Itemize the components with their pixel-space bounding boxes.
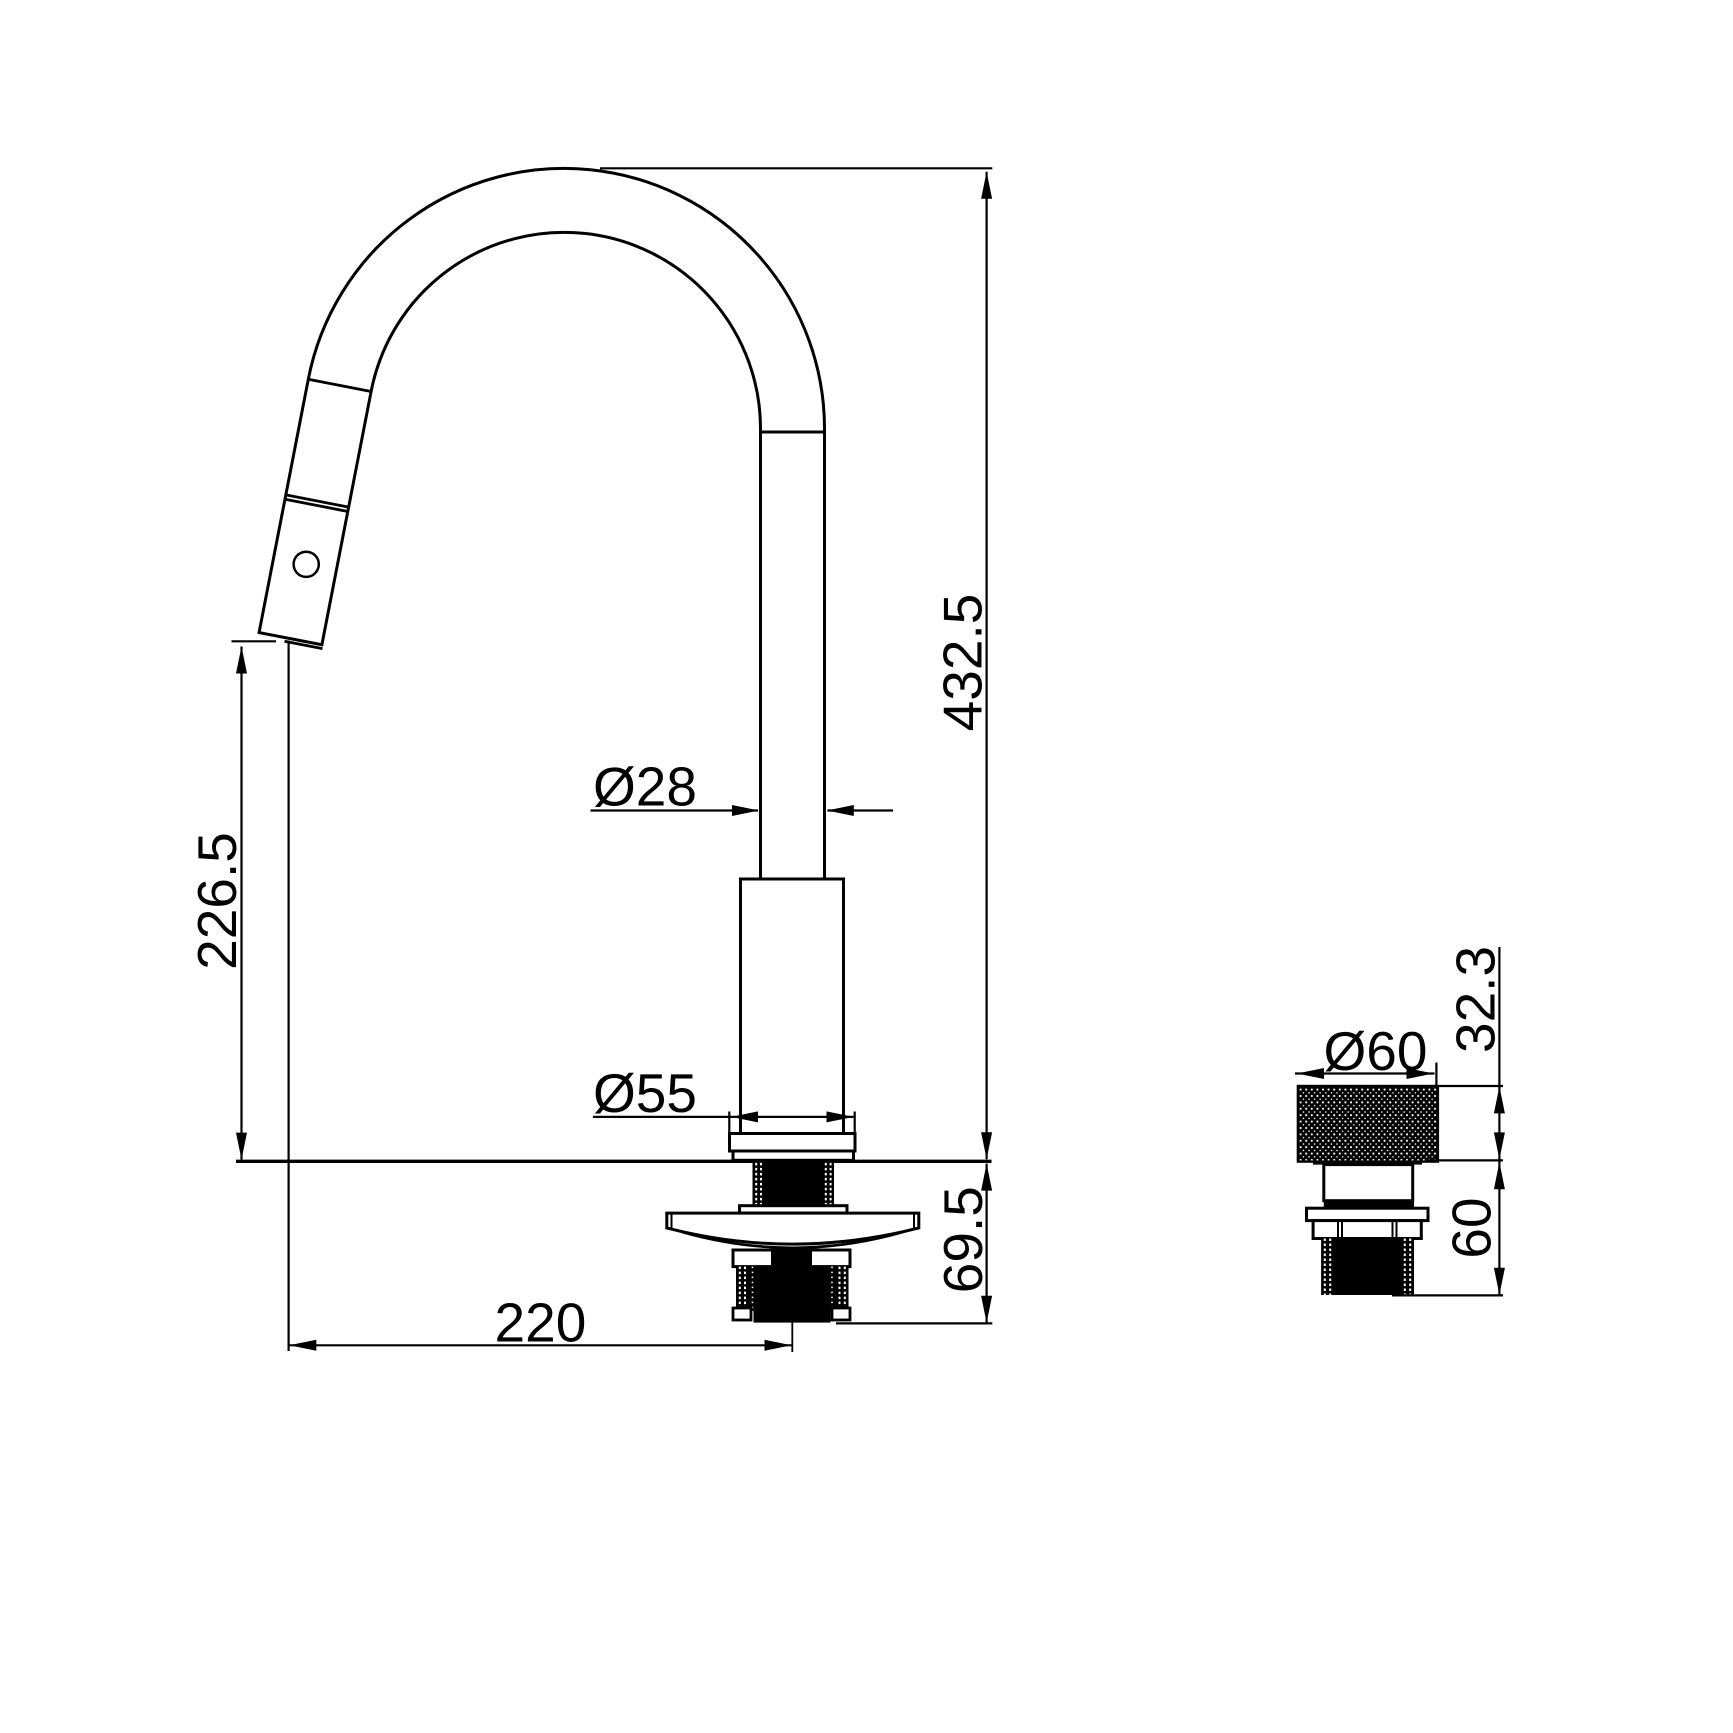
svg-text:220: 220 bbox=[495, 1291, 587, 1353]
svg-text:Ø55: Ø55 bbox=[593, 1062, 697, 1124]
svg-text:Ø60: Ø60 bbox=[1324, 1020, 1428, 1082]
svg-text:69.5: 69.5 bbox=[932, 1186, 994, 1293]
svg-text:32.3: 32.3 bbox=[1445, 946, 1507, 1053]
svg-text:60: 60 bbox=[1441, 1197, 1503, 1258]
svg-text:432.5: 432.5 bbox=[931, 594, 993, 732]
svg-text:Ø28: Ø28 bbox=[593, 756, 697, 818]
svg-text:226.5: 226.5 bbox=[186, 832, 248, 970]
